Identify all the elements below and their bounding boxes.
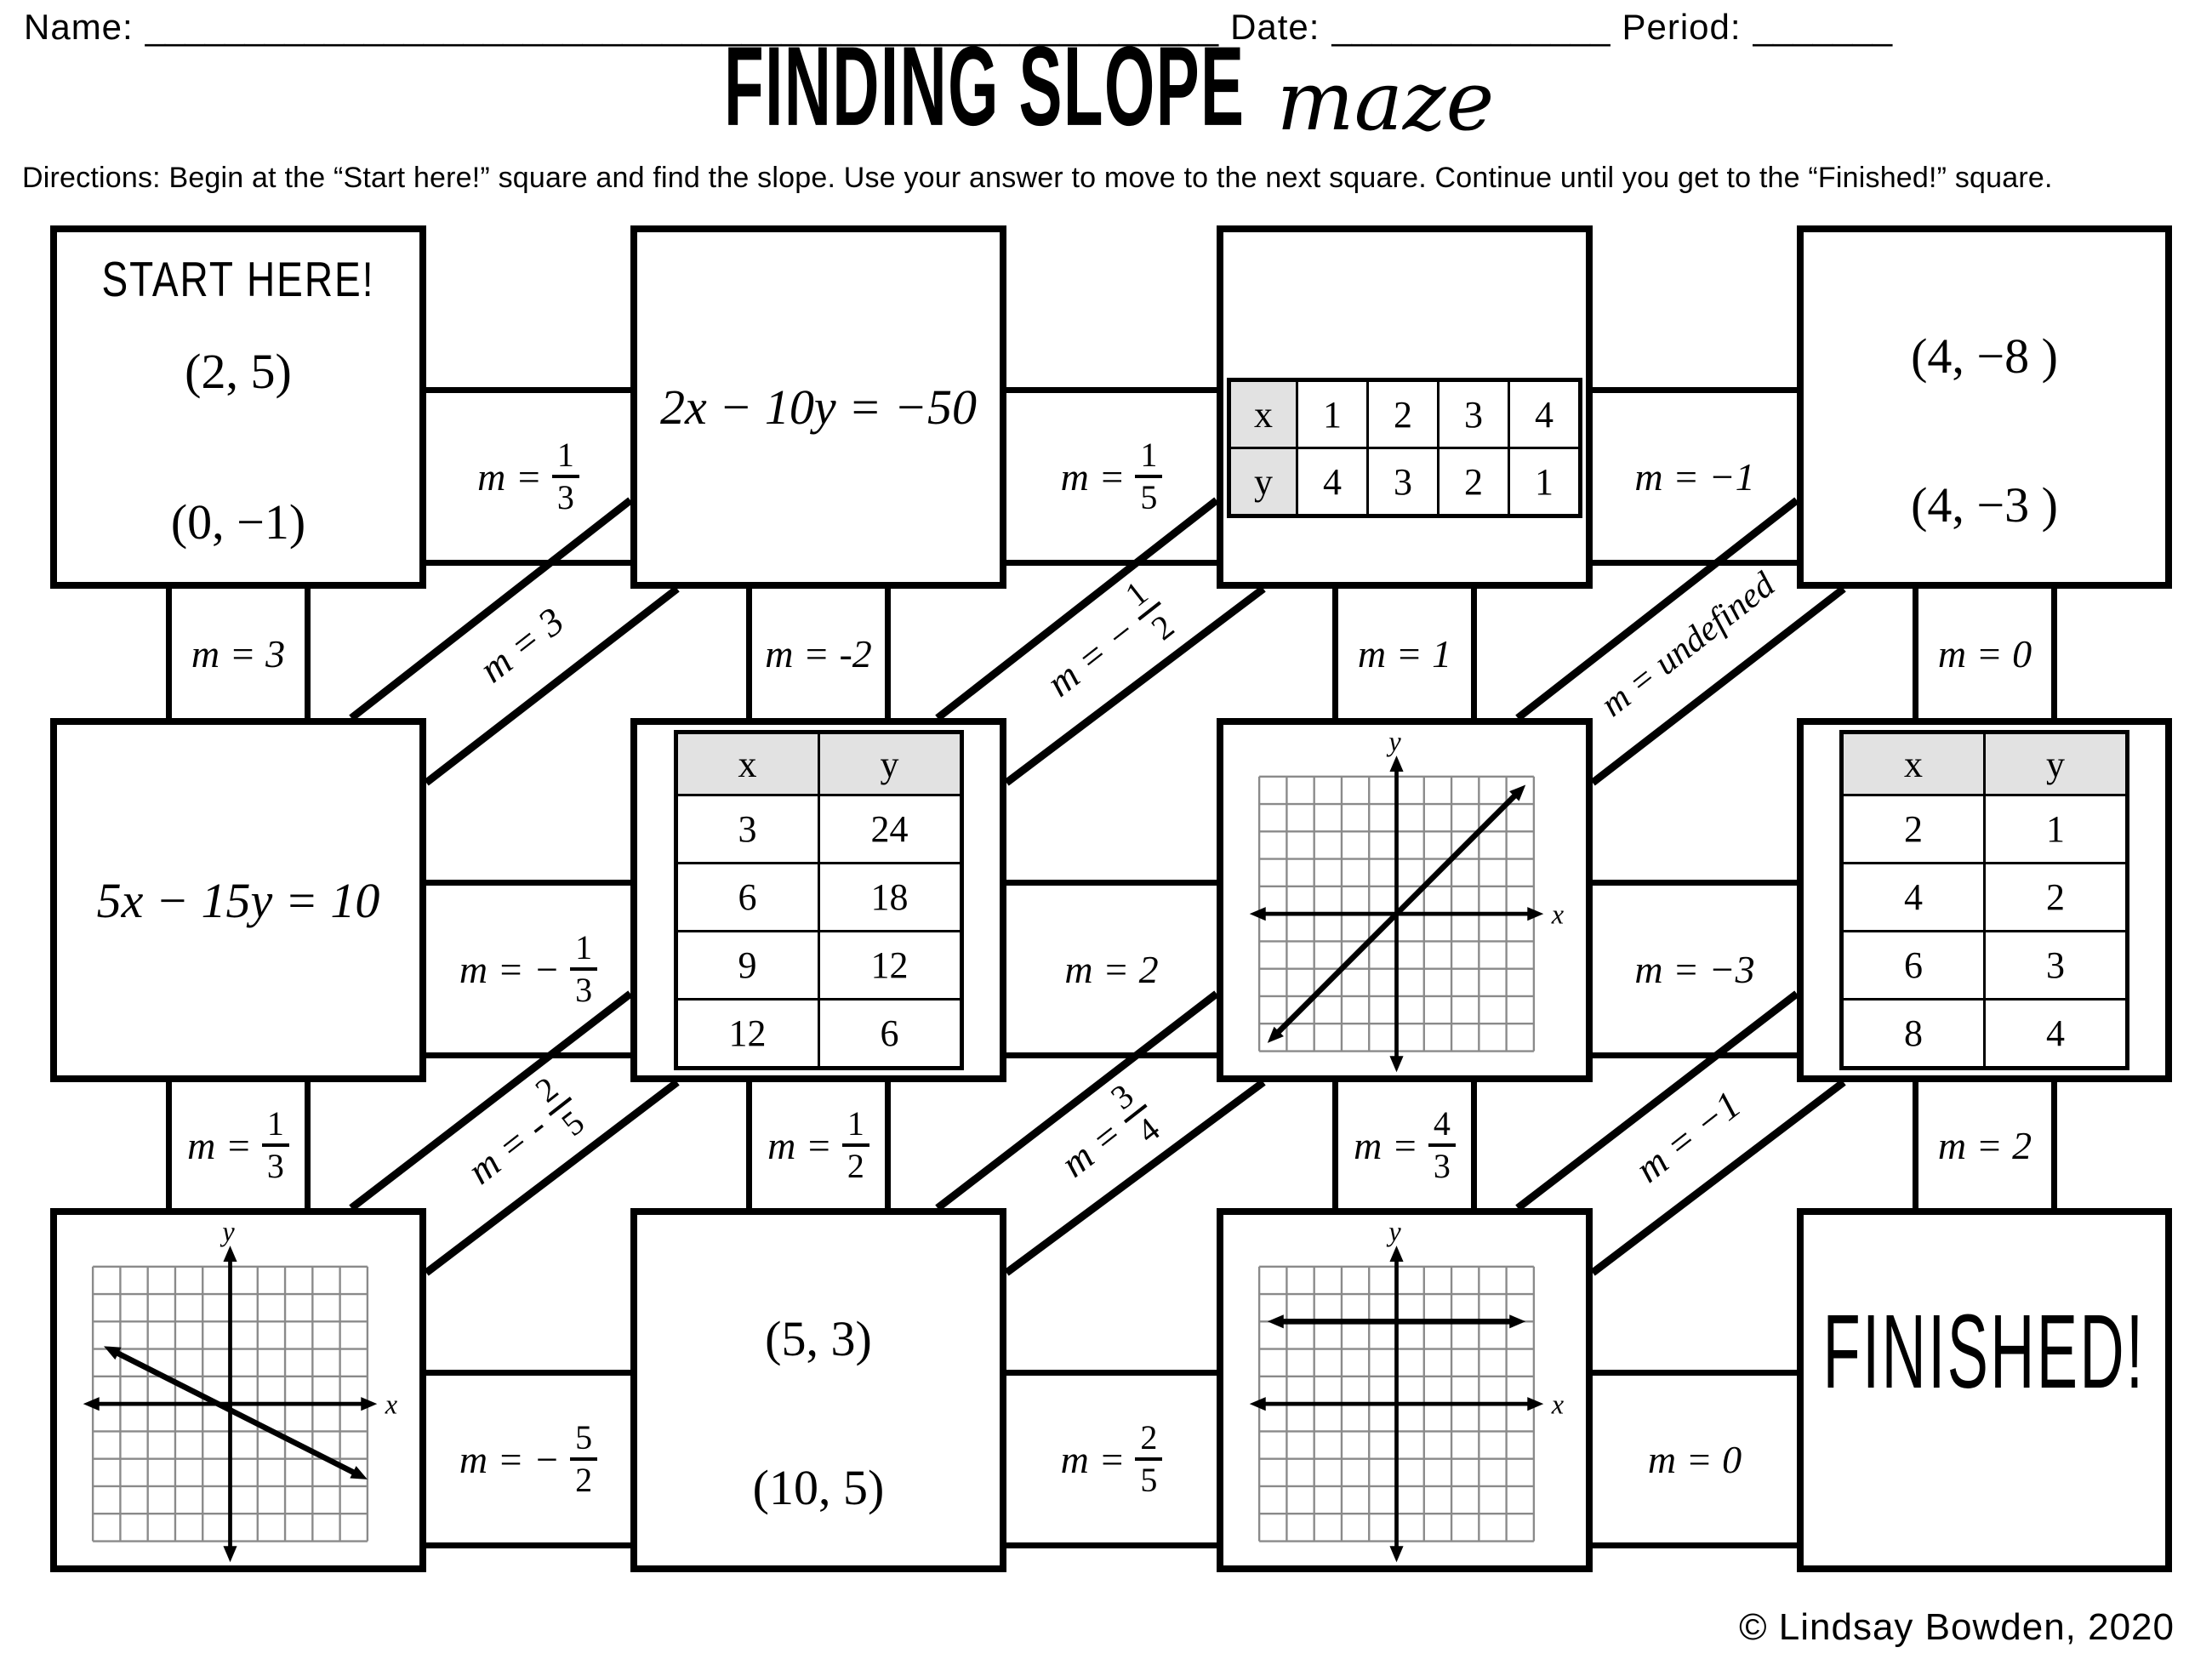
table-row: x 1 2 3 4 — [1229, 380, 1581, 448]
table-cell: 4 — [1509, 380, 1581, 448]
connector-corridor-v: m =43 — [1332, 1075, 1477, 1215]
table-cell: 4 — [1985, 1000, 2128, 1069]
table-cell: y — [1985, 733, 2128, 795]
connector-corridor-v: m =13 — [166, 1075, 311, 1215]
title-script-text: maze — [1277, 54, 1495, 149]
connector-label: m = −3 — [1634, 947, 1754, 992]
point-pair-value: (4, −3 ) — [1911, 476, 2058, 533]
table-row: 126 — [676, 1000, 961, 1069]
point-pair-value: (0, −1) — [171, 493, 305, 550]
connector-label: m =12 — [767, 1106, 869, 1184]
maze-box-finished: FINISHED! — [1797, 1208, 2172, 1572]
connector-corridor-h: m =25 — [1000, 1370, 1223, 1548]
connector-corridor-v: m = 0 — [1913, 582, 2057, 725]
svg-text:y: y — [1386, 726, 1401, 756]
connector-label: m =13 — [187, 1106, 289, 1184]
connector-label: m =25 — [1061, 1420, 1163, 1498]
table-row: 21 — [1842, 795, 2128, 864]
connector-corridor-v: m =12 — [746, 1075, 891, 1215]
connector-corridor-h: m = −1 — [1586, 387, 1804, 566]
table-cell: 1 — [1297, 380, 1368, 448]
finished-label: FINISHED! — [1823, 1291, 2146, 1413]
connector-label-diagonal: m = 3 — [470, 598, 573, 692]
table-cell: 6 — [818, 1000, 961, 1069]
connector-label-diagonal: m = undefined — [1593, 565, 1783, 726]
table-cell: x — [676, 733, 818, 795]
connector-corridor-h: m = 2 — [1000, 880, 1223, 1058]
table-cell: 18 — [818, 864, 961, 932]
table-cell: x — [1229, 380, 1297, 448]
connector-label: m = 0 — [1938, 631, 2032, 676]
xy-table-vertical: x y 324 618 912 126 — [674, 730, 964, 1070]
table-cell: 6 — [1842, 932, 1985, 1000]
title-main-text: FINDING SLOPE — [724, 23, 1245, 151]
table-cell: 12 — [818, 932, 961, 1000]
coordinate-graph-negative-slope: yx — [63, 1215, 413, 1565]
table-cell: 6 — [676, 864, 818, 932]
table-row: 324 — [676, 795, 961, 864]
start-here-label: START HERE! — [101, 250, 374, 308]
point-pair-value: (2, 5) — [185, 343, 292, 400]
maze-box-graph-positive-slope: yx — [1217, 718, 1593, 1082]
table-cell: 9 — [676, 932, 818, 1000]
connector-label: m = −52 — [459, 1420, 597, 1498]
table-cell: 4 — [1842, 864, 1985, 932]
connector-label: m = 3 — [191, 631, 285, 676]
table-cell: y — [818, 733, 961, 795]
svg-text:x: x — [1551, 1389, 1565, 1420]
worksheet-page: Name: __________________________________… — [0, 0, 2212, 1659]
maze-box-start: START HERE! (2, 5) (0, −1) — [50, 225, 426, 589]
connector-label-diagonal: m = −1 — [1627, 1082, 1749, 1192]
connector-corridor-v: m = -2 — [746, 582, 891, 725]
connector-corridor-h: m = −13 — [419, 880, 637, 1058]
table-cell: 1 — [1985, 795, 2128, 864]
connector-corridor-v: m = 1 — [1332, 582, 1477, 725]
connector-label: m = −1 — [1634, 454, 1754, 499]
maze-box-points-2: (5, 3) (10, 5) — [630, 1208, 1006, 1572]
table-row: 42 — [1842, 864, 2128, 932]
connector-label: m =13 — [477, 437, 579, 516]
svg-text:x: x — [1551, 899, 1565, 930]
xy-table-vertical: x y 21 42 63 84 — [1839, 730, 2129, 1070]
maze-box-table-1: x y 324 618 912 126 — [630, 718, 1006, 1082]
table-row: 618 — [676, 864, 961, 932]
svg-text:y: y — [1386, 1216, 1401, 1246]
table-row: 84 — [1842, 1000, 2128, 1069]
table-row: 912 — [676, 932, 961, 1000]
connector-label-diagonal: m = −12 — [1028, 572, 1185, 718]
connector-corridor-h: m = 0 — [1586, 1370, 1804, 1548]
coordinate-graph-horizontal-line: yx — [1229, 1215, 1580, 1565]
table-row: 63 — [1842, 932, 2128, 1000]
equation-text: 2x − 10y = −50 — [660, 379, 977, 436]
coordinate-graph-positive-slope: yx — [1229, 725, 1580, 1075]
table-cell: 24 — [818, 795, 961, 864]
table-cell: 12 — [676, 1000, 818, 1069]
xy-table-horizontal: x 1 2 3 4 y 4 3 2 1 — [1227, 378, 1582, 518]
svg-text:y: y — [219, 1216, 235, 1246]
table-cell: y — [1229, 448, 1297, 516]
table-cell: 3 — [1985, 932, 2128, 1000]
svg-text:x: x — [385, 1389, 398, 1420]
connector-label: m =43 — [1354, 1106, 1456, 1184]
maze-box-graph-horizontal-line: yx — [1217, 1208, 1593, 1572]
table-cell: 3 — [1439, 380, 1509, 448]
table-cell: x — [1842, 733, 1985, 795]
connector-corridor-v: m = 2 — [1913, 1075, 2057, 1215]
table-cell: 8 — [1842, 1000, 1985, 1069]
connector-label-diagonal: m =34 — [1041, 1075, 1170, 1199]
connector-corridor-h: m = −52 — [419, 1370, 637, 1548]
connector-label: m =15 — [1061, 437, 1163, 516]
table-cell: 3 — [676, 795, 818, 864]
table-row: x y — [1842, 733, 2128, 795]
maze-box-table-horizontal: x 1 2 3 4 y 4 3 2 1 — [1217, 225, 1593, 589]
page-title: FINDING SLOPE maze — [0, 41, 2212, 151]
directions-text: Directions: Begin at the “Start here!” s… — [22, 162, 2192, 195]
connector-corridor-h: m =13 — [419, 387, 637, 566]
connector-label-diagonal: m = -25 — [448, 1068, 595, 1206]
table-cell: 1 — [1509, 448, 1581, 516]
maze-box-graph-negative-slope: yx — [50, 1208, 426, 1572]
maze-box-table-2: x y 21 42 63 84 — [1797, 718, 2172, 1082]
connector-corridor-h: m = −3 — [1586, 880, 1804, 1058]
connector-corridor-v: m = 3 — [166, 582, 311, 725]
maze-box-equation-2: 5x − 15y = 10 — [50, 718, 426, 1082]
connector-label: m = 2 — [1938, 1123, 2032, 1168]
point-pair-value: (10, 5) — [753, 1459, 885, 1516]
point-pair-value: (4, −8 ) — [1911, 328, 2058, 385]
table-row: y 4 3 2 1 — [1229, 448, 1581, 516]
connector-label: m = −13 — [459, 930, 597, 1008]
connector-corridor-h: m =15 — [1000, 387, 1223, 566]
point-pair-value: (5, 3) — [765, 1310, 872, 1367]
table-cell: 2 — [1439, 448, 1509, 516]
maze-box-equation-1: 2x − 10y = −50 — [630, 225, 1006, 589]
connector-label: m = -2 — [765, 631, 872, 676]
table-row: x y — [676, 733, 961, 795]
table-cell: 2 — [1368, 380, 1439, 448]
table-cell: 3 — [1368, 448, 1439, 516]
table-cell: 2 — [1985, 864, 2128, 932]
table-cell: 2 — [1842, 795, 1985, 864]
maze-box-points-vertical: (4, −8 ) (4, −3 ) — [1797, 225, 2172, 589]
footer-credit: © Lindsay Bowden, 2020 — [1739, 1606, 2175, 1649]
table-cell: 4 — [1297, 448, 1368, 516]
connector-label: m = 0 — [1648, 1437, 1742, 1482]
connector-label: m = 2 — [1064, 947, 1158, 992]
connector-label: m = 1 — [1358, 631, 1451, 676]
equation-text: 5x − 15y = 10 — [97, 872, 380, 929]
